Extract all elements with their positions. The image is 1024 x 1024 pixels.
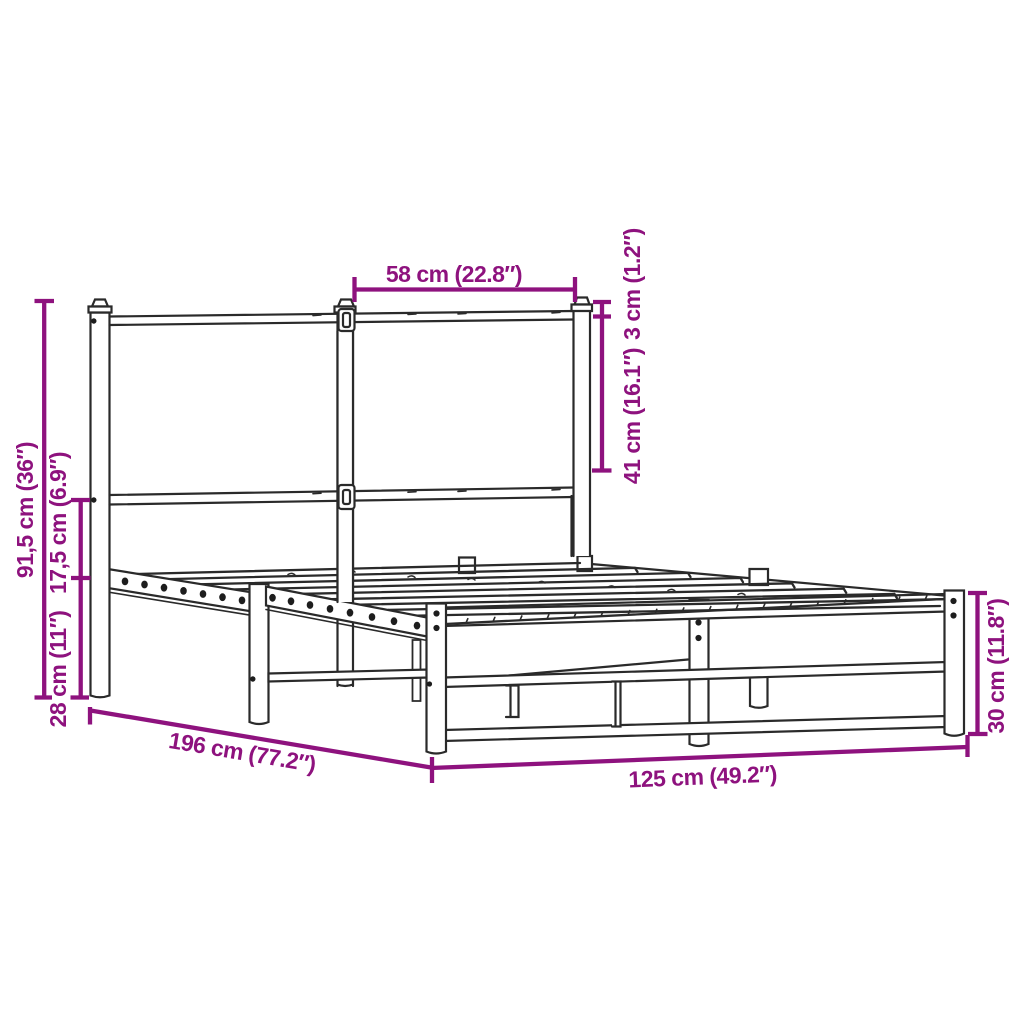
- svg-text:58 cm (22.8″): 58 cm (22.8″): [386, 261, 522, 287]
- svg-text:125 cm (49.2″): 125 cm (49.2″): [628, 761, 777, 793]
- svg-text:28 cm (11″): 28 cm (11″): [45, 611, 71, 728]
- svg-text:30 cm (11.8″): 30 cm (11.8″): [983, 599, 1009, 734]
- svg-text:3 cm (1.2″): 3 cm (1.2″): [619, 228, 645, 340]
- svg-text:91,5 cm (36″): 91,5 cm (36″): [12, 442, 38, 578]
- svg-text:17,5 cm (6.9″): 17,5 cm (6.9″): [45, 452, 71, 594]
- svg-text:41 cm (16.1″): 41 cm (16.1″): [619, 348, 645, 484]
